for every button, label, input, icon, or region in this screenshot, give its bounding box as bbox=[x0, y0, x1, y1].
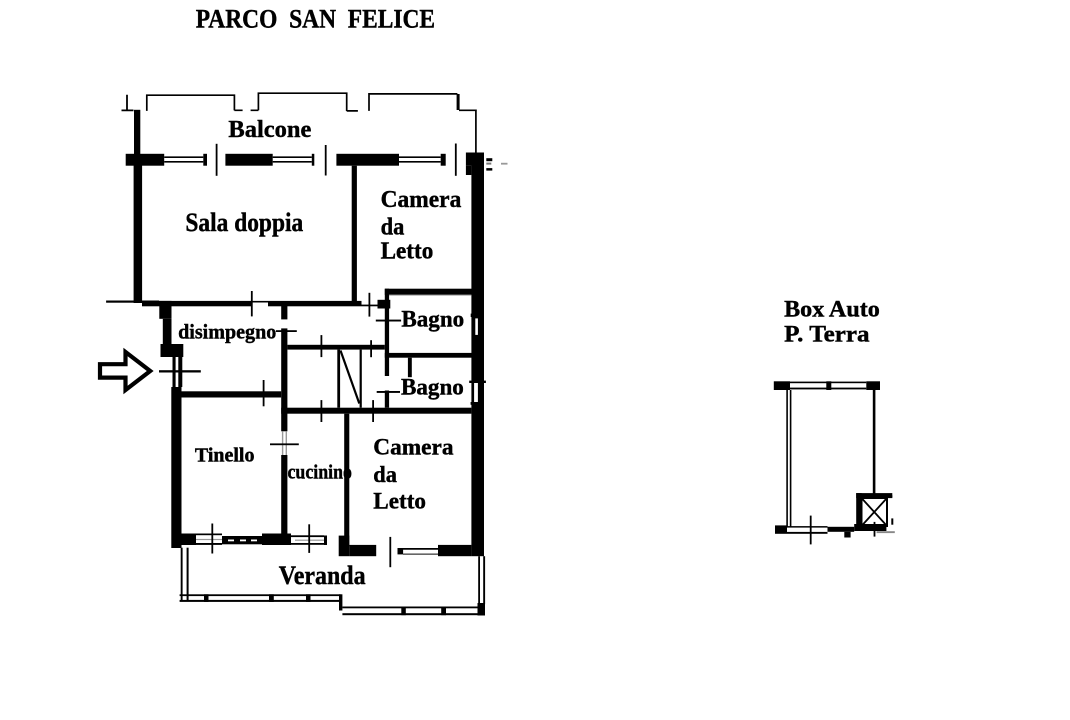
svg-text:PARCO SAN FELICE: PARCO SAN FELICE bbox=[196, 5, 435, 34]
svg-text:Veranda: Veranda bbox=[279, 561, 366, 590]
svg-text:Bagno: Bagno bbox=[401, 307, 464, 333]
svg-text:Sala doppia: Sala doppia bbox=[185, 208, 303, 237]
svg-text:Camera: Camera bbox=[381, 186, 462, 213]
svg-text:cucinino: cucinino bbox=[288, 461, 352, 483]
svg-text:disimpegno: disimpegno bbox=[178, 320, 276, 344]
svg-text:Letto: Letto bbox=[373, 489, 426, 515]
svg-text:Bagno: Bagno bbox=[401, 375, 464, 401]
svg-text:Camera: Camera bbox=[373, 435, 453, 461]
svg-text:Letto: Letto bbox=[381, 237, 434, 264]
svg-text:Tinello: Tinello bbox=[195, 445, 255, 466]
svg-text:Balcone: Balcone bbox=[228, 116, 311, 143]
svg-text:da: da bbox=[373, 462, 397, 488]
svg-text:Box Auto: Box Auto bbox=[784, 297, 880, 322]
svg-text:P. Terra: P. Terra bbox=[784, 322, 870, 347]
